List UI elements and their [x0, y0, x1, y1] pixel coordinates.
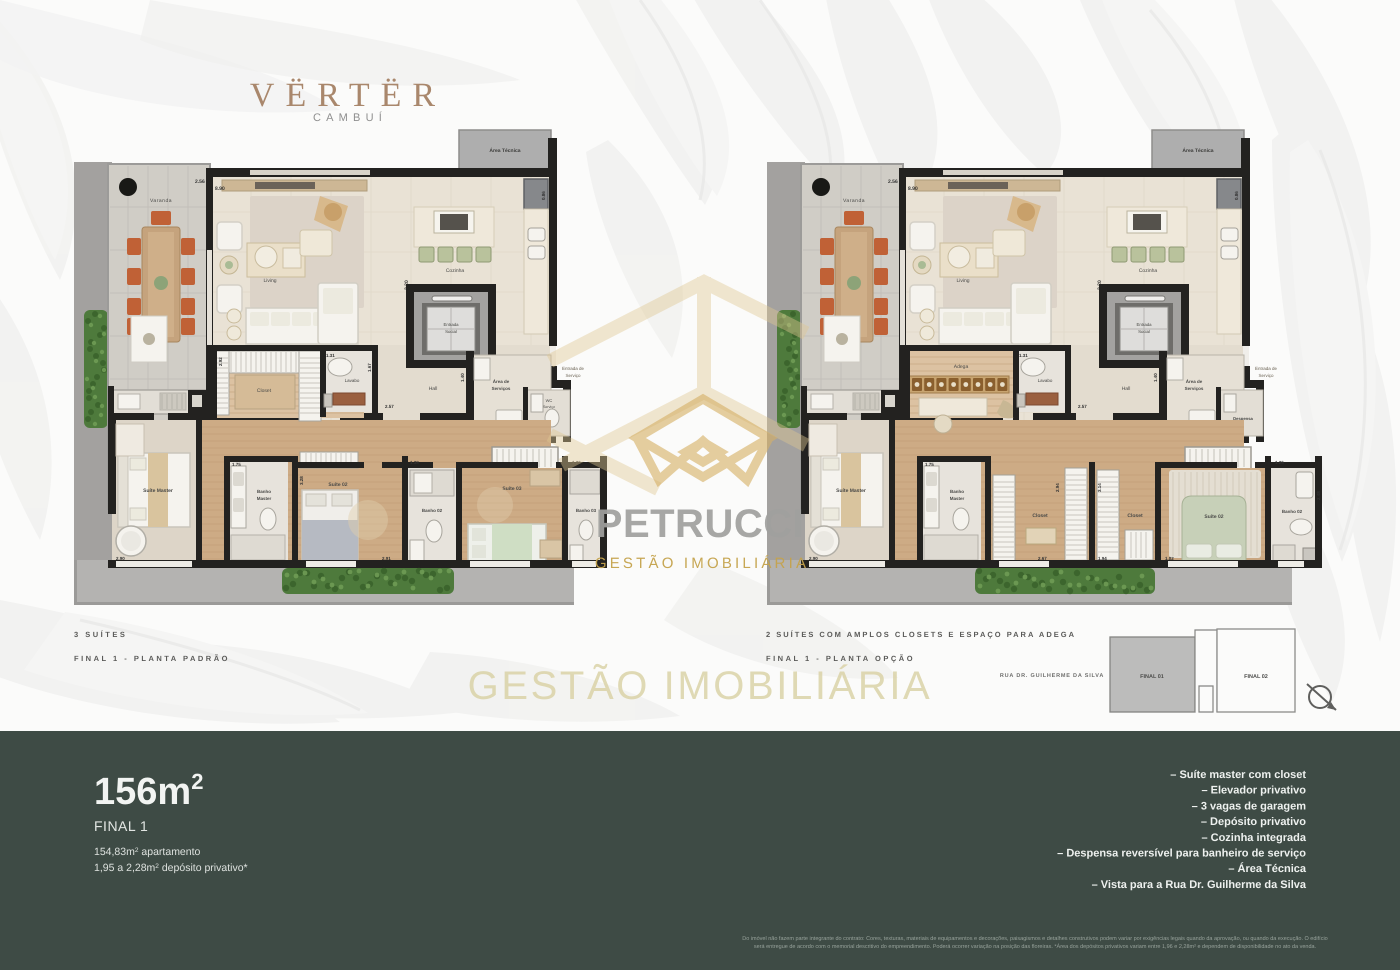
- svg-text:0.86: 0.86: [541, 191, 546, 200]
- svg-text:Serviços: Serviços: [492, 386, 511, 391]
- svg-text:Lavabo: Lavabo: [345, 378, 360, 383]
- svg-text:2.57: 2.57: [385, 404, 394, 409]
- svg-text:FINAL 01: FINAL 01: [1140, 674, 1164, 680]
- svg-text:Social: Social: [445, 329, 457, 334]
- svg-text:Closet: Closet: [257, 388, 272, 394]
- svg-text:Living: Living: [263, 278, 276, 284]
- svg-text:Banho: Banho: [257, 489, 271, 494]
- svg-text:3 SUÍTES: 3 SUÍTES: [74, 630, 127, 639]
- svg-text:será entregue de acordo com o: será entregue de acordo com o memorial d…: [754, 943, 1317, 950]
- svg-text:Banho: Banho: [950, 489, 964, 494]
- svg-text:2.56: 2.56: [888, 179, 898, 185]
- svg-text:3.14: 3.14: [1097, 483, 1102, 492]
- svg-text:Banho 02: Banho 02: [1282, 509, 1303, 514]
- svg-text:VËRTËR: VËRTËR: [250, 77, 446, 114]
- svg-text:1.75: 1.75: [925, 462, 934, 467]
- svg-text:2.92: 2.92: [218, 357, 223, 366]
- svg-text:2.56: 2.56: [195, 179, 205, 185]
- svg-text:– Área Técnica: – Área Técnica: [1228, 862, 1307, 875]
- svg-text:FINAL 1 - PLANTA PADRÃO: FINAL 1 - PLANTA PADRÃO: [74, 654, 230, 663]
- svg-text:Banho 03: Banho 03: [576, 508, 597, 513]
- svg-text:1.40: 1.40: [460, 373, 465, 382]
- svg-text:1,95 a 2,28m2 depósito privati: 1,95 a 2,28m2 depósito privativo*: [94, 862, 248, 874]
- svg-text:8.90: 8.90: [908, 186, 918, 192]
- svg-text:PETRUCCI: PETRUCCI: [596, 502, 804, 546]
- svg-text:– Cozinha integrada: – Cozinha integrada: [1201, 832, 1306, 844]
- svg-text:Suíte Master: Suíte Master: [143, 488, 173, 494]
- svg-text:Área Técnica: Área Técnica: [1182, 147, 1213, 154]
- svg-text:GESTÃO IMOBILIÁRIA: GESTÃO IMOBILIÁRIA: [595, 554, 809, 572]
- svg-text:Entrada: Entrada: [1136, 322, 1152, 327]
- svg-text:Serviços: Serviços: [1185, 386, 1204, 391]
- svg-text:156m2: 156m2: [94, 769, 203, 813]
- svg-text:FINAL 1: FINAL 1: [94, 818, 148, 834]
- svg-text:Suíte 02: Suíte 02: [328, 482, 347, 488]
- svg-text:Hall: Hall: [1122, 386, 1131, 392]
- svg-text:– Vista para a Rua Dr. Guilher: – Vista para a Rua Dr. Guilherme da Silv…: [1092, 879, 1307, 891]
- svg-text:2.94: 2.94: [1055, 483, 1060, 492]
- svg-text:Varanda: Varanda: [843, 198, 865, 204]
- svg-text:Adega: Adega: [954, 364, 969, 370]
- svg-text:1.38: 1.38: [410, 460, 419, 465]
- svg-text:Área Técnica: Área Técnica: [489, 147, 520, 154]
- svg-text:Área de: Área de: [493, 379, 510, 384]
- svg-text:Serviço: Serviço: [543, 405, 555, 409]
- svg-text:Área de: Área de: [1186, 379, 1203, 384]
- svg-text:1.40: 1.40: [1153, 373, 1158, 382]
- svg-text:GESTÃO IMOBILIÁRIA: GESTÃO IMOBILIÁRIA: [468, 663, 933, 708]
- svg-text:– Despensa reversível para ban: – Despensa reversível para banheiro de s…: [1057, 848, 1306, 860]
- svg-text:Banho 02: Banho 02: [422, 508, 443, 513]
- svg-text:Closet: Closet: [1032, 513, 1048, 519]
- svg-text:FINAL 02: FINAL 02: [1244, 674, 1268, 680]
- svg-text:Varanda: Varanda: [150, 198, 172, 204]
- svg-text:WC: WC: [546, 398, 553, 403]
- svg-text:– Depósito privativo: – Depósito privativo: [1201, 816, 1306, 828]
- svg-text:2.57: 2.57: [1078, 404, 1087, 409]
- svg-text:Serviço: Serviço: [1258, 373, 1274, 378]
- svg-text:Social: Social: [1138, 329, 1150, 334]
- svg-text:154,83m2 apartamento: 154,83m2 apartamento: [94, 846, 201, 858]
- svg-text:– Elevador privativo: – Elevador privativo: [1201, 785, 1306, 797]
- svg-text:Closet: Closet: [1127, 513, 1143, 519]
- svg-text:2.48: 2.48: [1316, 491, 1321, 500]
- svg-text:Master: Master: [257, 496, 272, 501]
- svg-text:– 3 vagas de garagem: – 3 vagas de garagem: [1192, 800, 1307, 812]
- svg-text:Cozinha: Cozinha: [446, 268, 465, 274]
- svg-text:Entrada: Entrada: [443, 322, 459, 327]
- svg-text:0.86: 0.86: [1234, 191, 1239, 200]
- svg-text:Cozinha: Cozinha: [1139, 268, 1158, 274]
- svg-text:1.31: 1.31: [1019, 353, 1028, 358]
- svg-text:Entrada de: Entrada de: [562, 366, 585, 371]
- svg-text:8.90: 8.90: [215, 186, 225, 192]
- svg-text:CAMBUÍ: CAMBUÍ: [313, 111, 387, 124]
- svg-text:2 SUÍTES COM AMPLOS CLOSETS E: 2 SUÍTES COM AMPLOS CLOSETS E ESPAÇO PAR…: [766, 630, 1076, 639]
- svg-text:1.31: 1.31: [326, 353, 335, 358]
- svg-text:1.75: 1.75: [232, 462, 241, 467]
- svg-text:Entrada de: Entrada de: [1255, 366, 1278, 371]
- svg-text:Hall: Hall: [429, 386, 438, 392]
- svg-text:Living: Living: [956, 278, 969, 284]
- svg-text:1.67: 1.67: [367, 363, 372, 372]
- svg-text:RUA DR. GUILHERME DA SILVA: RUA DR. GUILHERME DA SILVA: [1000, 673, 1104, 679]
- svg-text:Do imóvel não fazem parte inte: Do imóvel não fazem parte integrante do …: [742, 935, 1327, 942]
- svg-text:Suíte Master: Suíte Master: [836, 488, 866, 494]
- svg-text:Master: Master: [950, 496, 965, 501]
- svg-text:1.26: 1.26: [1275, 460, 1284, 465]
- svg-text:Lavabo: Lavabo: [1038, 378, 1053, 383]
- svg-text:3.28: 3.28: [299, 476, 304, 485]
- svg-text:Suíte 02: Suíte 02: [1204, 514, 1223, 520]
- svg-text:FINAL 1 - PLANTA OPÇÃO: FINAL 1 - PLANTA OPÇÃO: [766, 654, 915, 663]
- svg-text:Serviço: Serviço: [565, 373, 581, 378]
- svg-text:– Suíte master com closet: – Suíte master com closet: [1170, 769, 1306, 781]
